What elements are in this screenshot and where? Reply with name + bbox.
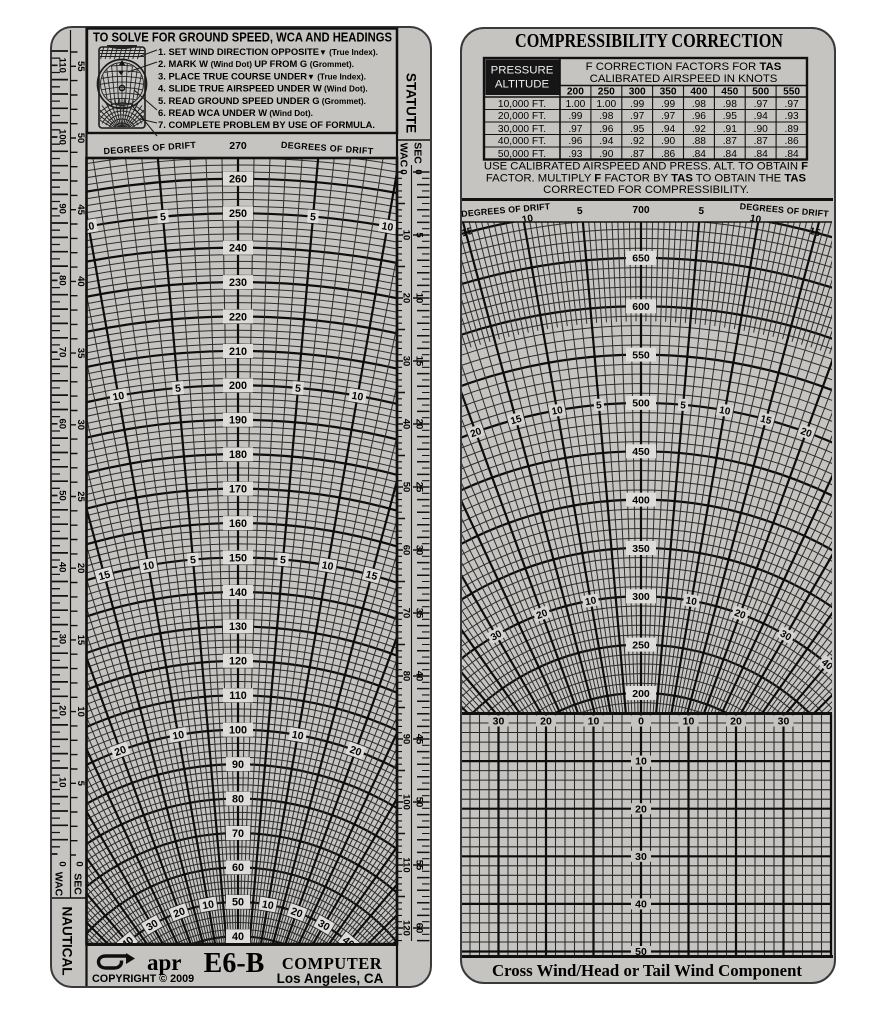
svg-text:20: 20 [540, 716, 552, 728]
svg-text:45: 45 [414, 734, 425, 745]
svg-text:6. READ WCA UNDER W (Wind Dot): 6. READ WCA UNDER W (Wind Dot). [158, 107, 313, 118]
svg-text:650: 650 [632, 253, 650, 265]
svg-text:.98: .98 [599, 111, 613, 122]
svg-text:10: 10 [351, 390, 365, 404]
svg-text:220: 220 [229, 311, 247, 323]
svg-text:100: 100 [229, 725, 247, 737]
svg-text:Cross Wind/Head or Tail Wind C: Cross Wind/Head or Tail Wind Component [492, 961, 802, 980]
svg-text:30: 30 [414, 545, 425, 556]
svg-text:60: 60 [401, 545, 412, 556]
svg-text:COPYRIGHT © 2009: COPYRIGHT © 2009 [92, 973, 194, 985]
svg-text:700: 700 [632, 205, 649, 216]
svg-text:F CORRECTION FACTORS FOR TAS: F CORRECTION FACTORS FOR TAS [586, 61, 782, 73]
svg-text:.87: .87 [723, 136, 737, 147]
svg-text:.95: .95 [723, 111, 737, 122]
svg-text:170: 170 [229, 484, 247, 496]
svg-text:.94: .94 [599, 136, 613, 147]
svg-text:25: 25 [414, 482, 425, 493]
svg-text:25: 25 [75, 491, 86, 502]
svg-text:2. MARK W (Wind Dot) UP FROM G: 2. MARK W (Wind Dot) UP FROM G (Grommet)… [158, 58, 354, 69]
svg-text:20: 20 [414, 419, 425, 430]
svg-text:15: 15 [75, 635, 86, 646]
svg-text:10: 10 [172, 729, 186, 743]
svg-text:10: 10 [588, 716, 600, 728]
svg-text:20: 20 [57, 705, 68, 716]
svg-text:50: 50 [75, 133, 86, 144]
svg-text:40,000 FT.: 40,000 FT. [498, 136, 546, 147]
svg-text:200: 200 [632, 688, 650, 700]
svg-text:.99: .99 [661, 99, 675, 110]
svg-text:70: 70 [401, 608, 412, 619]
svg-text:15: 15 [414, 356, 425, 367]
svg-text:260: 260 [229, 174, 247, 186]
svg-text:230: 230 [229, 277, 247, 289]
svg-text:550: 550 [783, 87, 800, 98]
svg-text:55: 55 [414, 860, 425, 871]
svg-text:5: 5 [75, 781, 86, 787]
svg-text:5: 5 [160, 211, 167, 223]
svg-text:5: 5 [294, 383, 301, 395]
svg-text:Los Angeles, CA: Los Angeles, CA [277, 971, 384, 986]
svg-text:.84: .84 [723, 149, 737, 160]
svg-text:ALTITUDE: ALTITUDE [495, 79, 550, 91]
svg-text:20,000 FT.: 20,000 FT. [498, 111, 546, 122]
svg-text:4. SLIDE TRUE AIRSPEED UNDER W: 4. SLIDE TRUE AIRSPEED UNDER W (Wind Dot… [158, 83, 368, 94]
svg-text:30: 30 [75, 420, 86, 431]
svg-text:.93: .93 [568, 149, 582, 160]
svg-text:.96: .96 [692, 111, 706, 122]
svg-text:90: 90 [232, 759, 244, 771]
svg-text:60: 60 [57, 419, 68, 430]
svg-text:10: 10 [321, 559, 335, 573]
svg-text:90: 90 [401, 734, 412, 745]
svg-text:300: 300 [632, 591, 650, 603]
svg-text:50: 50 [232, 897, 244, 909]
svg-text:.97: .97 [785, 99, 799, 110]
svg-text:20: 20 [635, 803, 647, 815]
svg-text:55: 55 [75, 61, 86, 72]
svg-text:30: 30 [57, 634, 68, 645]
svg-text:10: 10 [635, 756, 647, 768]
svg-text:160: 160 [229, 518, 247, 530]
svg-text:20: 20 [75, 563, 86, 574]
svg-text:20: 20 [401, 293, 412, 304]
svg-text:90: 90 [57, 203, 68, 214]
svg-text:5: 5 [190, 554, 197, 566]
svg-text:450: 450 [632, 446, 650, 458]
svg-text:10: 10 [261, 898, 275, 912]
svg-text:CORRECTED FOR COMPRESSIBILITY.: CORRECTED FOR COMPRESSIBILITY. [543, 184, 749, 196]
svg-text:0: 0 [74, 861, 85, 866]
svg-text:10: 10 [683, 716, 695, 728]
svg-text:50: 50 [57, 490, 68, 501]
svg-text:SEC: SEC [412, 142, 424, 164]
svg-text:100: 100 [57, 129, 68, 145]
svg-text:E6-B: E6-B [204, 948, 265, 979]
svg-text:.97: .97 [630, 111, 644, 122]
svg-text:10: 10 [142, 559, 156, 573]
svg-text:.97: .97 [568, 124, 582, 135]
svg-text:30: 30 [493, 716, 505, 728]
svg-text:500: 500 [752, 87, 769, 98]
svg-text:CALIBRATED AIRSPEED IN KNOTS: CALIBRATED AIRSPEED IN KNOTS [590, 73, 778, 85]
svg-text:30: 30 [635, 851, 647, 863]
svg-text:.88: .88 [692, 136, 706, 147]
svg-text:450: 450 [721, 87, 738, 98]
svg-text:.90: .90 [754, 124, 768, 135]
svg-text:.97: .97 [661, 111, 675, 122]
svg-text:110: 110 [57, 58, 68, 73]
svg-text:.99: .99 [568, 111, 582, 122]
svg-text:110: 110 [229, 690, 246, 702]
svg-text:.89: .89 [785, 124, 799, 135]
svg-text:100: 100 [401, 794, 412, 810]
svg-text:600: 600 [632, 301, 650, 313]
svg-text:190: 190 [229, 415, 247, 427]
svg-text:40: 40 [635, 899, 647, 911]
svg-text:180: 180 [229, 449, 247, 461]
svg-text:130: 130 [229, 621, 247, 633]
svg-text:.91: .91 [723, 124, 737, 135]
svg-text:60: 60 [414, 923, 425, 934]
svg-text:PRESSURE: PRESSURE [491, 65, 554, 77]
svg-text:5: 5 [175, 383, 182, 395]
svg-text:10: 10 [291, 729, 305, 743]
svg-text:80: 80 [232, 793, 244, 805]
svg-text:250: 250 [598, 87, 615, 98]
svg-text:350: 350 [660, 87, 677, 98]
svg-text:.92: .92 [630, 136, 644, 147]
svg-text:10: 10 [112, 390, 126, 404]
svg-text:COMPRESSIBILITY CORRECTION: COMPRESSIBILITY CORRECTION [515, 30, 783, 52]
svg-text:10: 10 [414, 293, 425, 304]
svg-text:45: 45 [75, 204, 86, 215]
svg-text:150: 150 [229, 552, 247, 564]
svg-text:350: 350 [632, 543, 650, 555]
svg-text:.92: .92 [692, 124, 706, 135]
svg-text:10: 10 [201, 898, 215, 912]
svg-text:200: 200 [229, 380, 247, 392]
svg-text:240: 240 [229, 243, 247, 255]
svg-text:30: 30 [401, 356, 412, 367]
svg-text:.86: .86 [785, 136, 799, 147]
svg-text:200: 200 [567, 87, 584, 98]
svg-text:5: 5 [309, 211, 316, 223]
svg-text:0: 0 [57, 861, 68, 866]
svg-text:50,000 FT.: 50,000 FT. [498, 149, 546, 160]
svg-text:70: 70 [57, 347, 68, 358]
svg-text:.87: .87 [630, 149, 644, 160]
svg-text:550: 550 [632, 349, 650, 361]
svg-text:10,000 FT.: 10,000 FT. [498, 99, 546, 110]
svg-text:.87: .87 [754, 136, 768, 147]
svg-text:.84: .84 [785, 149, 799, 160]
svg-text:0: 0 [638, 716, 644, 728]
svg-text:1.00: 1.00 [565, 99, 585, 110]
svg-text:40: 40 [232, 931, 244, 943]
svg-text:TO SOLVE FOR GROUND SPEED, WCA: TO SOLVE FOR GROUND SPEED, WCA AND HEADI… [93, 30, 392, 45]
svg-text:.90: .90 [599, 149, 613, 160]
svg-text:110: 110 [401, 857, 412, 872]
svg-text:40: 40 [414, 671, 425, 682]
svg-text:210: 210 [229, 346, 247, 358]
svg-text:120: 120 [401, 920, 412, 936]
svg-text:1.00: 1.00 [596, 99, 616, 110]
svg-text:140: 140 [229, 587, 247, 599]
svg-text:.96: .96 [568, 136, 582, 147]
svg-text:3. PLACE TRUE COURSE UNDER▼ (T: 3. PLACE TRUE COURSE UNDER▼ (True Index)… [158, 70, 366, 81]
svg-text:120: 120 [229, 656, 247, 668]
svg-text:.94: .94 [661, 124, 675, 135]
svg-text:80: 80 [401, 671, 412, 682]
svg-text:.90: .90 [661, 136, 675, 147]
svg-text:FACTOR. MULTIPLY F FACTOR BY T: FACTOR. MULTIPLY F FACTOR BY TAS TO OBTA… [486, 173, 807, 185]
svg-text:10: 10 [75, 706, 86, 717]
svg-text:WAC: WAC [53, 872, 65, 897]
svg-text:250: 250 [632, 639, 650, 651]
svg-text:7. COMPLETE PROBLEM BY USE OF: 7. COMPLETE PROBLEM BY USE OF FORMULA. [158, 119, 375, 130]
svg-text:50: 50 [414, 797, 425, 808]
svg-text:35: 35 [75, 348, 86, 359]
svg-text:USE CALIBRATED AIRSPEED AND PR: USE CALIBRATED AIRSPEED AND PRESS. ALT. … [484, 161, 808, 173]
svg-text:.99: .99 [630, 99, 644, 110]
svg-text:300: 300 [629, 87, 646, 98]
svg-text:apr: apr [147, 950, 182, 975]
svg-text:STATUTE: STATUTE [404, 73, 419, 133]
svg-text:60: 60 [232, 862, 244, 874]
svg-text:80: 80 [57, 275, 68, 286]
svg-text:250: 250 [229, 208, 247, 220]
svg-text:.95: .95 [630, 124, 644, 135]
svg-text:1. SET WIND DIRECTION OPPOSITE: 1. SET WIND DIRECTION OPPOSITE▼ (True In… [158, 46, 378, 57]
svg-text:NAUTICAL: NAUTICAL [60, 907, 75, 976]
svg-text:40: 40 [57, 562, 68, 573]
svg-text:.97: .97 [754, 99, 768, 110]
svg-text:40: 40 [75, 276, 86, 287]
svg-text:5. READ GROUND SPEED UNDER G (: 5. READ GROUND SPEED UNDER G (Grommet). [158, 95, 366, 106]
svg-text:.98: .98 [692, 99, 706, 110]
svg-text:270: 270 [229, 140, 247, 152]
svg-text:30: 30 [778, 716, 790, 728]
svg-text:.86: .86 [661, 149, 675, 160]
svg-text:WAC: WAC [398, 143, 410, 168]
svg-text:.84: .84 [754, 149, 768, 160]
svg-text:10: 10 [401, 230, 412, 241]
svg-text:30,000 FT.: 30,000 FT. [498, 124, 546, 135]
svg-text:.84: .84 [692, 149, 706, 160]
svg-text:50: 50 [401, 482, 412, 493]
svg-text:400: 400 [632, 494, 650, 506]
svg-text:5: 5 [279, 554, 286, 566]
svg-text:.96: .96 [599, 124, 613, 135]
svg-text:70: 70 [232, 828, 244, 840]
svg-text:500: 500 [632, 398, 650, 410]
svg-text:.94: .94 [754, 111, 768, 122]
svg-text:20: 20 [730, 716, 742, 728]
svg-text:400: 400 [690, 87, 707, 98]
svg-text:.98: .98 [723, 99, 737, 110]
svg-text:35: 35 [414, 608, 425, 619]
svg-text:SEC: SEC [72, 873, 84, 895]
svg-text:40: 40 [401, 419, 412, 430]
svg-text:10: 10 [381, 220, 395, 234]
svg-text:.93: .93 [785, 111, 799, 122]
svg-text:10: 10 [57, 777, 68, 788]
svg-text:5: 5 [414, 232, 425, 238]
